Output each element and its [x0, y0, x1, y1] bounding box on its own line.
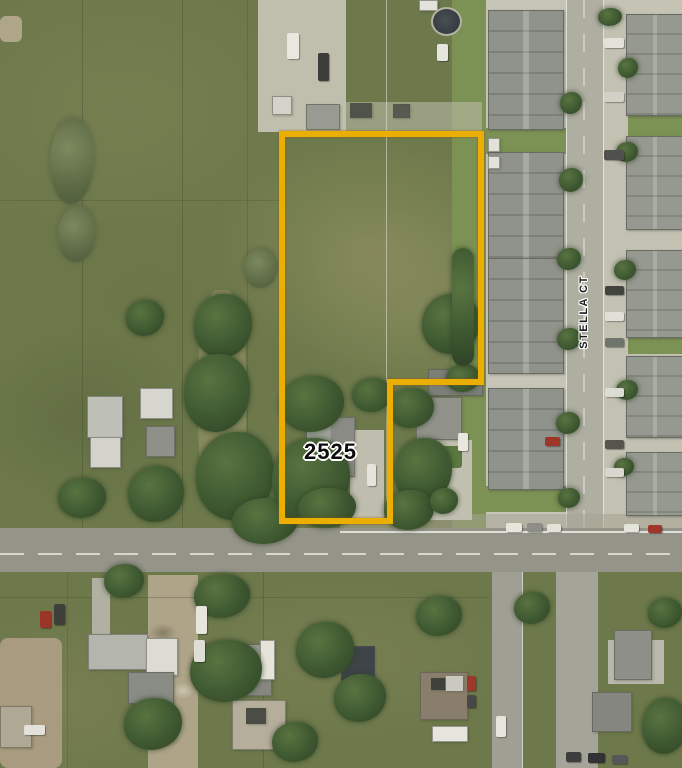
aerial-map: 2525 STELLA CT — [0, 0, 682, 768]
parcel-boundary — [0, 0, 682, 768]
street-name-label: STELLA CT — [578, 275, 590, 349]
parcel-number-label: 2525 — [304, 441, 357, 463]
